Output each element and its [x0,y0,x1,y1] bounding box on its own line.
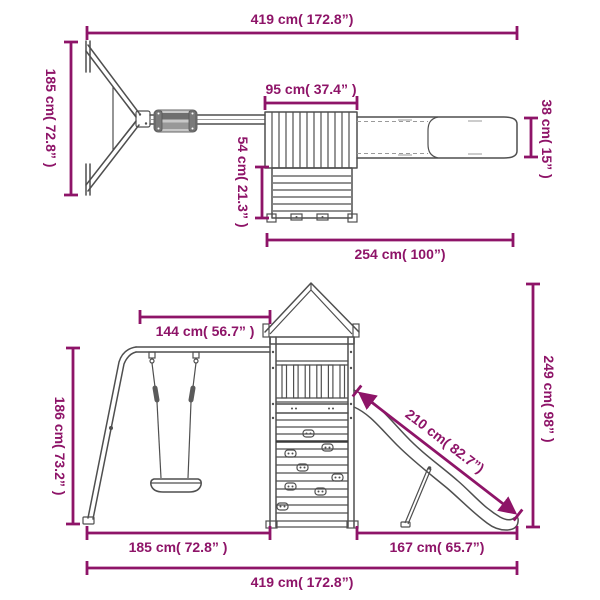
swing-seat-front [151,479,201,492]
dim-label-roof-length: 95 cm( 37.4” ) [265,81,356,97]
dim-label-slide-width: 38 cm( 15” ) [539,99,555,178]
dim-swing-section-width [87,526,270,540]
dim-roof-length [265,96,357,110]
dim-total-length-top [87,26,517,40]
dim-total-height [526,284,540,527]
dim-tower-slide-length [267,233,513,247]
dim-platform-depth [255,167,269,218]
swing-frame-front [83,347,270,524]
tower-roof-top [265,112,357,168]
dim-label-swing-beam-length: 144 cm( 56.7” ) [156,323,255,339]
dim-total-length-front [87,561,517,575]
dim-label-swing-frame-height: 186 cm( 73.2” ) [52,397,68,496]
dim-slide-section-width [357,526,517,540]
tower-roof-front [263,283,359,344]
tower-front [263,283,359,528]
swing-front [149,352,201,492]
slide-top [357,117,517,158]
front-view [66,283,540,575]
tower-platform-top [267,168,357,222]
dim-label-total-height: 249 cm( 98” ) [541,355,557,442]
swing-frame-top [86,41,150,195]
dim-swing-beam-length [140,310,270,324]
dim-slide-length [353,386,523,521]
dim-label-swing-section-width: 185 cm( 72.8” ) [129,539,228,555]
dim-label-total-length-top: 419 cm( 172.8”) [251,11,354,27]
dim-swing-frame-width [64,42,78,195]
tower-railing [276,361,348,402]
dim-slide-width [524,118,538,157]
playset-dimension-diagram: 419 cm( 172.8”) 185 cm( 72.8” ) 95 cm( 3… [0,0,600,600]
dim-label-tower-slide-length: 254 cm( 100”) [354,246,445,262]
slide-front [354,390,518,530]
dim-label-swing-frame-width: 185 cm( 72.8” ) [43,69,59,168]
dim-label-slide-section-width: 167 cm( 65.7”) [390,539,485,555]
tower-floor [276,404,348,413]
top-view [64,26,538,247]
dim-label-total-length-front: 419 cm( 172.8”) [251,574,354,590]
dim-label-platform-depth: 54 cm( 21.3” ) [235,136,251,227]
dim-swing-frame-height [66,348,80,524]
swing-seat-top [154,110,197,132]
